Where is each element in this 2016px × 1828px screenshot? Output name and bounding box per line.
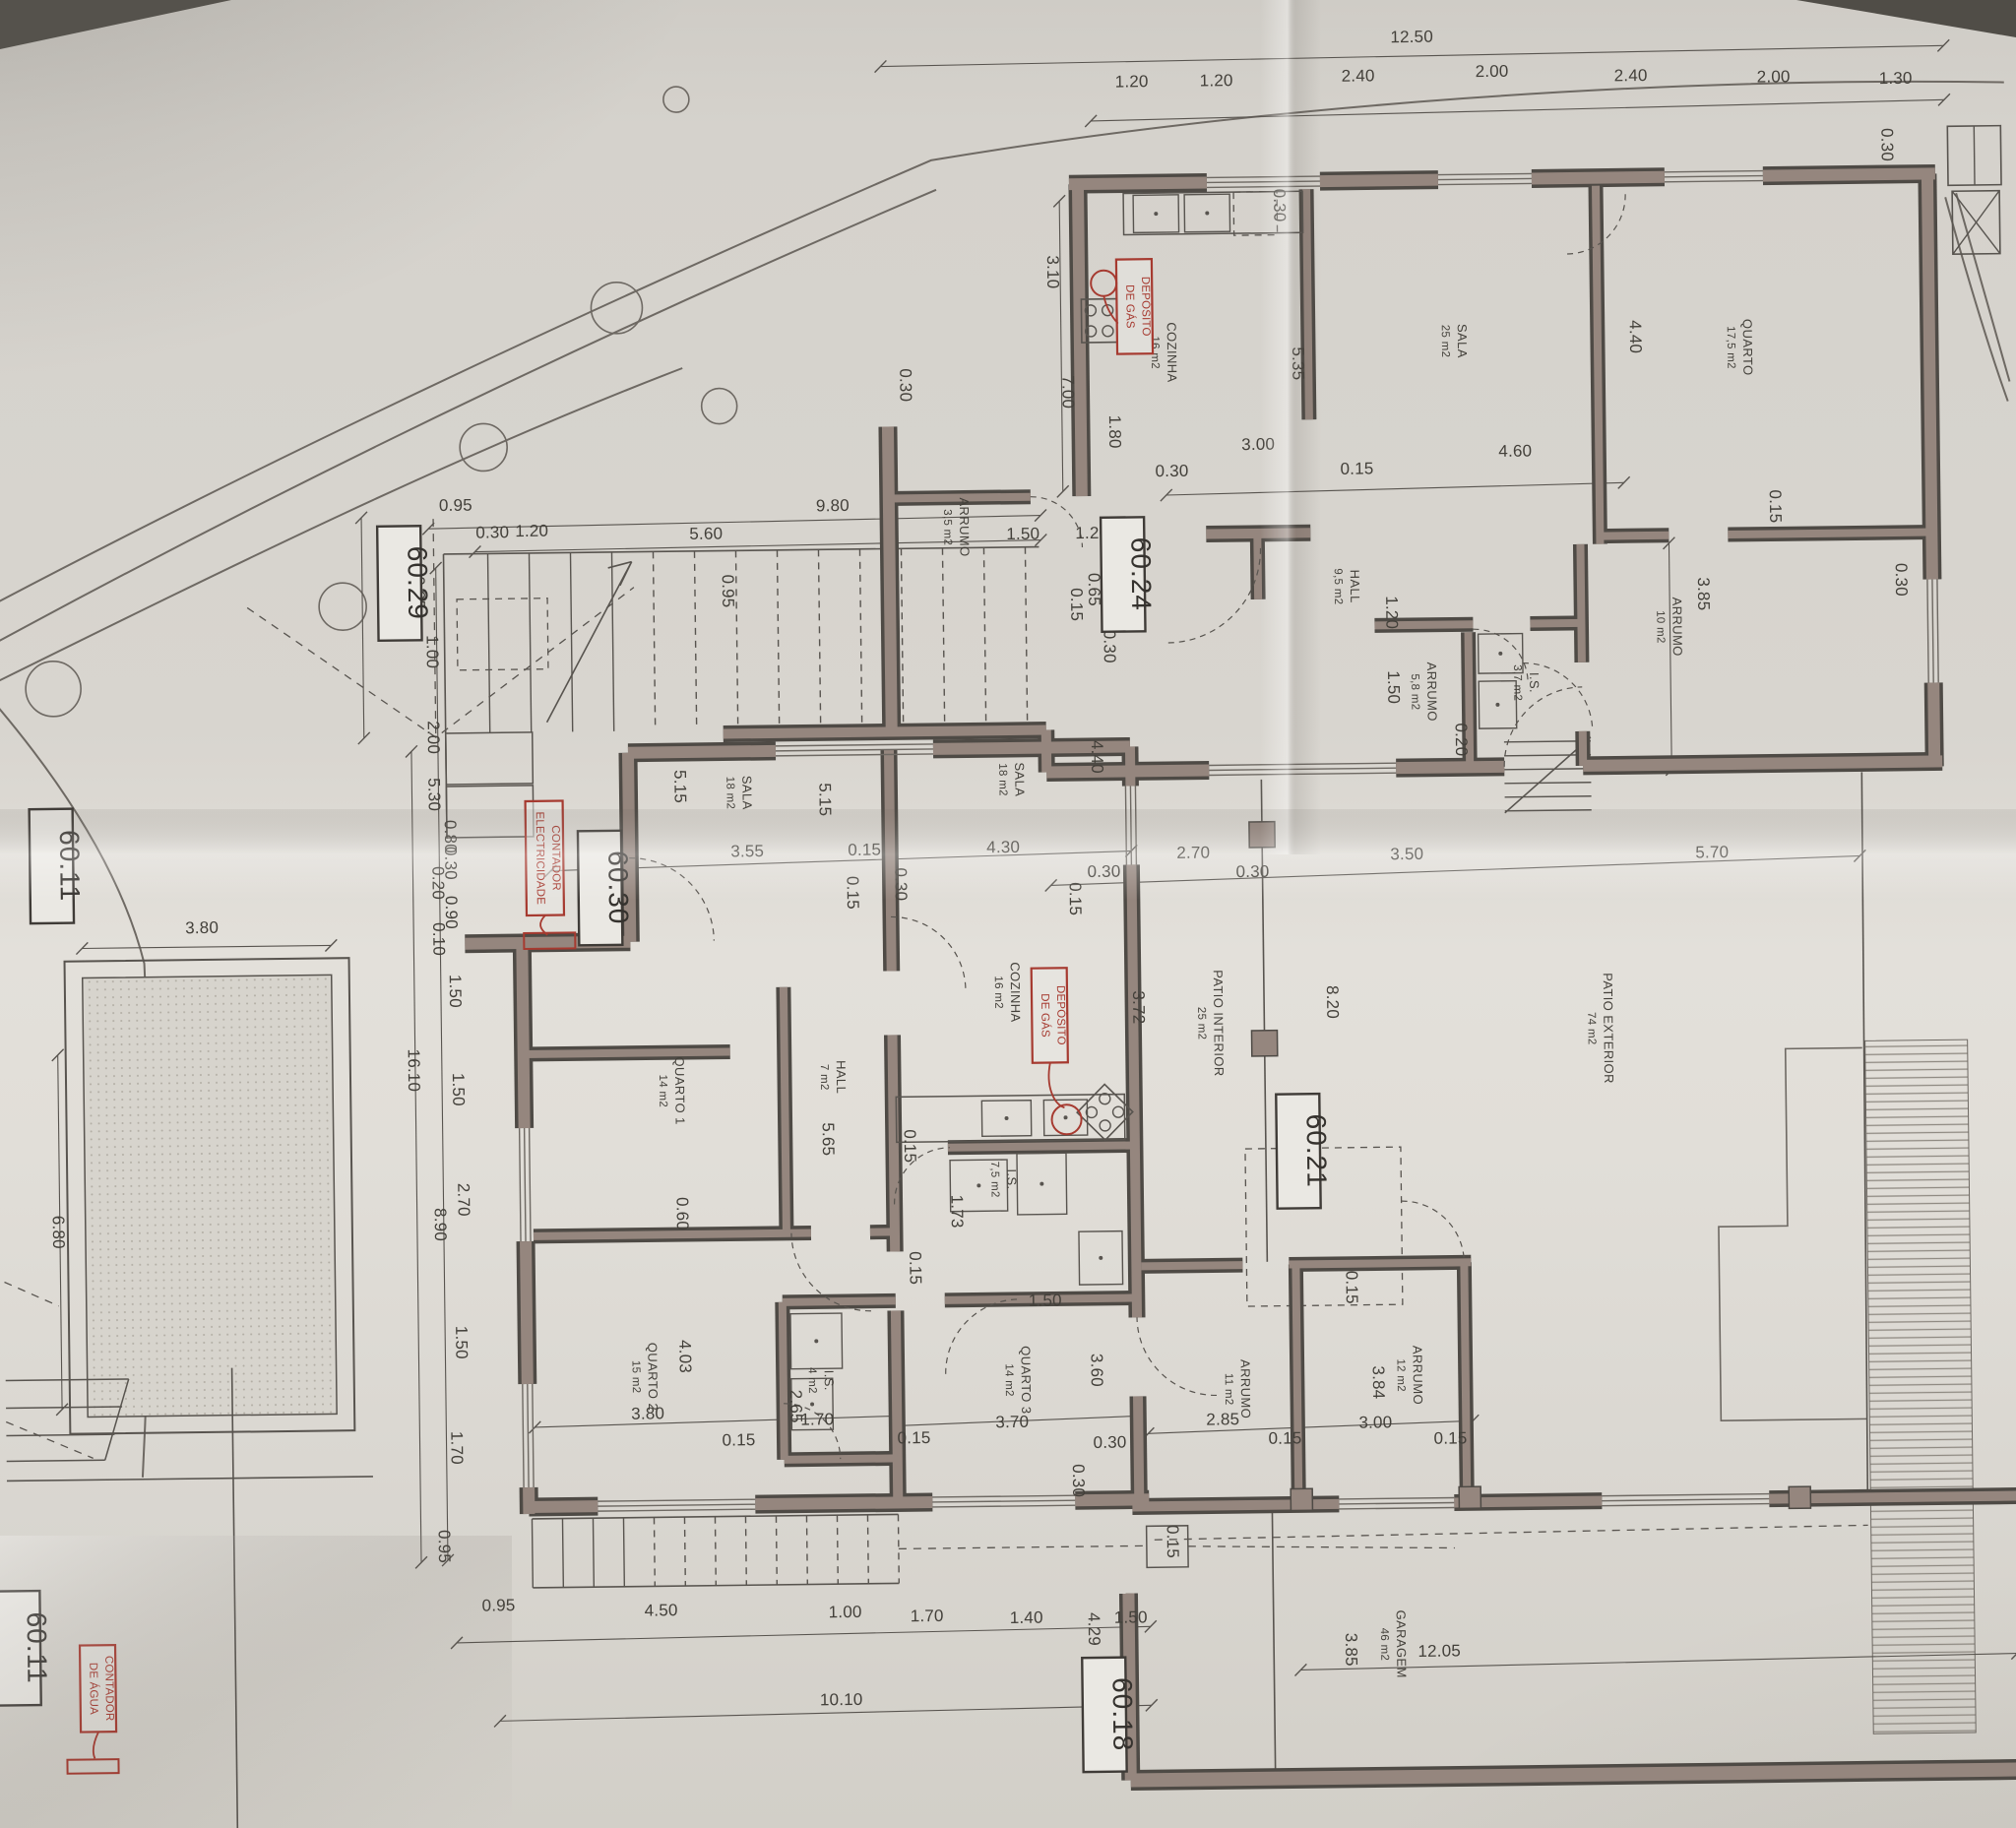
dimension-label: 1.30 xyxy=(1879,69,1913,88)
room-label: SALA xyxy=(1455,324,1470,358)
room-area-label: 25 m2 xyxy=(1195,1007,1207,1040)
dashed-line xyxy=(433,519,436,735)
dimension-label: 2.70 xyxy=(454,1183,472,1217)
dimension-label: 5.30 xyxy=(424,778,443,811)
stair-tread xyxy=(859,549,861,728)
wall xyxy=(896,1310,898,1502)
wall xyxy=(1320,180,1438,181)
dimension-label: 0.30 xyxy=(1877,128,1896,161)
wall xyxy=(529,1506,598,1507)
wall xyxy=(1141,1265,1242,1266)
fixture-dot xyxy=(1039,1182,1043,1186)
red-annotation-leader xyxy=(1048,1062,1064,1107)
stair-tread xyxy=(1504,769,1591,770)
dimension-label: 3.00 xyxy=(1358,1413,1392,1431)
door-swing-arc xyxy=(1402,1200,1465,1263)
dimension-label: 1.50 xyxy=(452,1326,471,1359)
dimension-line xyxy=(535,1416,897,1426)
window xyxy=(523,1384,524,1487)
dimension-label: 0.15 xyxy=(906,1251,924,1285)
dimension-label: 4.40 xyxy=(1626,320,1645,353)
room-area-label: 3,5 m2 xyxy=(941,509,953,545)
window xyxy=(776,744,933,746)
stair-tread xyxy=(1505,796,1592,797)
dimension-label: 0.95 xyxy=(719,574,737,607)
dimension-label: 7.00 xyxy=(1058,375,1077,409)
stair-tread xyxy=(776,1516,777,1585)
wall xyxy=(724,730,1046,734)
red-annotation-label: DE GÁS xyxy=(1123,284,1137,329)
dimension-label: 1.70 xyxy=(800,1410,834,1428)
dimension-label: 16.10 xyxy=(405,1048,424,1092)
dimension-label: 1.50 xyxy=(446,975,465,1008)
dimension-label: 1.50 xyxy=(1029,1291,1062,1309)
door-swing-arc xyxy=(891,916,966,991)
window xyxy=(1339,1498,1454,1499)
dimension-label: 0.30 xyxy=(475,523,509,541)
window xyxy=(528,1384,529,1487)
dimension-label: 0.30 xyxy=(896,368,914,402)
red-annotation-target xyxy=(1091,271,1116,296)
pool-inner xyxy=(83,975,337,1417)
dimension-label: 6.80 xyxy=(49,1216,68,1249)
landscape-circle xyxy=(460,423,508,472)
stair-tread xyxy=(1025,547,1027,726)
wall xyxy=(1396,767,1504,768)
fixture-dot xyxy=(810,1402,814,1406)
dashed-line xyxy=(1188,1544,1455,1551)
dimension-label: 1.50 xyxy=(449,1073,468,1106)
room-label: QUARTO 2 xyxy=(645,1343,661,1411)
plan-line xyxy=(7,1477,373,1481)
room-label: QUARTO 3 xyxy=(1018,1346,1034,1414)
dimension-label: 0.15 xyxy=(1268,1428,1301,1447)
fixture-dot xyxy=(1498,652,1502,656)
wall xyxy=(784,987,787,1233)
wall xyxy=(1583,761,1942,765)
dimension-label: 1.73 xyxy=(947,1195,966,1229)
room-area-label: 12 m2 xyxy=(1395,1358,1407,1392)
room-area-label: 15 m2 xyxy=(630,1360,642,1394)
stair-tread xyxy=(611,552,613,731)
site-boundary-curve xyxy=(1945,197,2008,403)
dimension-label: 1.50 xyxy=(1006,525,1039,543)
column xyxy=(1291,1488,1312,1510)
dashed-line xyxy=(4,1282,58,1307)
fixture-dot xyxy=(1005,1116,1009,1120)
floor-plan: 12.501.201.202.402.002.402.001.300.303.1… xyxy=(0,0,2016,1828)
window xyxy=(1927,580,1928,683)
dimension-line xyxy=(1059,201,1063,491)
dimension-label: 0.15 xyxy=(901,1129,919,1163)
paved-walkway-hatch xyxy=(1865,1040,1977,1733)
plan-line xyxy=(1272,1513,1275,1774)
site-boundary-curve xyxy=(0,80,2010,602)
window xyxy=(1438,183,1532,184)
wall xyxy=(1933,682,1934,766)
room-label: ARRUMO xyxy=(1410,1346,1425,1405)
room-area-label: 11 m2 xyxy=(1223,1373,1234,1406)
dimension-label: 2.00 xyxy=(1476,62,1509,81)
plan-line xyxy=(545,562,634,723)
dimension-label: 5.15 xyxy=(670,770,689,803)
window xyxy=(525,1128,526,1241)
room-label: HALL xyxy=(1348,570,1362,603)
room-area-label: 17,5 m2 xyxy=(1725,326,1737,369)
dimension-label: 1.20 xyxy=(1200,71,1233,90)
dashed-line xyxy=(6,1420,93,1459)
fixture-dot xyxy=(1495,703,1499,707)
dimension-label: 0.30 xyxy=(1094,1433,1127,1452)
plan-line xyxy=(620,562,632,586)
wall xyxy=(526,1241,528,1384)
room-label: I.S. xyxy=(1527,672,1542,693)
red-annotation-target xyxy=(1051,1104,1081,1134)
window xyxy=(598,1499,755,1501)
window xyxy=(1937,579,1938,682)
wall xyxy=(1763,173,1935,175)
dimension-label: 2.85 xyxy=(1206,1410,1239,1428)
dimension-label: 0.10 xyxy=(429,922,448,956)
dimension-label: 3.72 xyxy=(1129,990,1148,1024)
dimension-label: 1.70 xyxy=(911,1607,944,1625)
room-label: ARRUMO xyxy=(1424,662,1440,722)
wall xyxy=(755,1502,932,1504)
dimension-label: 1.20 xyxy=(515,522,548,540)
stair-tread xyxy=(684,1517,685,1586)
fixture-dot xyxy=(1154,212,1158,216)
room-label: QUARTO 1 xyxy=(672,1056,688,1124)
dashed-rect xyxy=(457,599,548,670)
dimension-label: 12.50 xyxy=(1390,28,1433,47)
stair-tread xyxy=(529,553,531,732)
room-area-label: 18 m2 xyxy=(724,777,735,810)
stair-tread xyxy=(942,548,944,727)
window xyxy=(932,1495,1075,1497)
dimension-line xyxy=(880,45,1943,66)
room-label: ARRUMO xyxy=(1238,1359,1254,1418)
room-area-label: 5,8 m2 xyxy=(1409,673,1420,710)
dimension-label: 10.10 xyxy=(820,1690,863,1710)
room-label: ARRUMO xyxy=(1669,597,1685,656)
window xyxy=(1602,1504,1769,1506)
wall xyxy=(628,751,776,753)
room-label: PATIO INTERIOR xyxy=(1211,970,1227,1077)
dimension-label: 3.80 xyxy=(185,918,219,937)
room-area-label: 74 m2 xyxy=(1585,1012,1597,1045)
dimension-label: 1.20 xyxy=(1382,596,1401,629)
dimension-label: 1.50 xyxy=(1114,1607,1148,1626)
room-area-label: 7,5 m2 xyxy=(988,1162,1000,1198)
landscape-circle xyxy=(701,388,736,423)
window xyxy=(533,1384,534,1487)
column xyxy=(1459,1486,1480,1508)
fixture-dot xyxy=(1099,1256,1102,1260)
wall xyxy=(1580,544,1581,662)
window xyxy=(932,1500,1075,1502)
dimension-label: 0.30 xyxy=(1892,563,1911,597)
photographed-floor-plan-sheet: 12.501.201.202.402.002.402.001.300.303.1… xyxy=(0,0,2016,1828)
dimension-label: 1.70 xyxy=(447,1431,466,1465)
room-area-label: 7 m2 xyxy=(818,1064,830,1091)
window xyxy=(1339,1503,1454,1504)
dimension-label: 9.80 xyxy=(816,496,850,515)
room-label: GARAGEM xyxy=(1394,1609,1410,1677)
dimension-label: 4.60 xyxy=(1498,441,1532,460)
dimension-label: 2.40 xyxy=(1614,66,1648,85)
wall xyxy=(1131,864,1137,1317)
window xyxy=(598,1504,755,1506)
room-area-label: 10 m2 xyxy=(1654,610,1666,644)
window xyxy=(1665,176,1763,177)
window xyxy=(776,749,933,751)
room-label: COZINHA xyxy=(1008,962,1024,1022)
room-area-label: 14 m2 xyxy=(657,1074,668,1107)
elevation-marker-label: 60.24 xyxy=(1125,537,1157,611)
pool-step xyxy=(7,1460,105,1461)
dashed-line xyxy=(899,1545,1147,1548)
room-area-label: 4 m2 xyxy=(806,1367,818,1394)
dimension-label: 0.15 xyxy=(1766,489,1785,523)
utility-cabinet-icon xyxy=(1974,126,1975,185)
wall xyxy=(1927,174,1932,580)
red-annotation-label: DEPÓSITO xyxy=(1054,985,1068,1045)
pool-step xyxy=(6,1434,114,1435)
wall xyxy=(783,1300,896,1301)
dimension-label: 3.10 xyxy=(1043,255,1062,288)
room-label: SALA xyxy=(1012,762,1027,796)
window xyxy=(598,1509,755,1511)
wall xyxy=(1257,534,1258,599)
stair-tread xyxy=(901,548,903,727)
window xyxy=(1602,1494,1769,1496)
wall xyxy=(1295,1264,1298,1504)
elevation-marker-label: 60.29 xyxy=(402,546,433,620)
dimension-line xyxy=(457,1626,1151,1643)
landscape-circle xyxy=(319,583,367,631)
site-boundary-curve xyxy=(1956,193,2009,383)
dimension-line xyxy=(1148,1420,1473,1433)
fixture-dot xyxy=(814,1339,818,1343)
room-area-label: 16 m2 xyxy=(992,976,1004,1009)
door-swing-arc xyxy=(1137,1316,1217,1396)
photo-background-corner-top-right xyxy=(1796,0,2016,37)
stair-tread xyxy=(654,1517,655,1586)
room-label: SALA xyxy=(739,776,754,810)
dimension-label: 3.70 xyxy=(995,1413,1029,1431)
dimension-label: 1.00 xyxy=(423,635,442,668)
dimension-label: 3.85 xyxy=(1342,1633,1360,1667)
dimension-label: 2.00 xyxy=(424,721,443,754)
room-label: I.S. xyxy=(822,1370,837,1391)
dimension-label: 0.15 xyxy=(1433,1428,1467,1447)
wall xyxy=(888,426,892,731)
stair-tread xyxy=(623,1518,624,1587)
paper-fold-vertical xyxy=(1260,0,1321,854)
window xyxy=(1665,181,1763,182)
elevation-marker-label: 60.18 xyxy=(1106,1677,1138,1751)
stair-tread xyxy=(745,1516,746,1585)
stair-tread xyxy=(818,549,820,728)
stair-tread xyxy=(487,553,489,732)
window xyxy=(1438,173,1532,174)
stair-tread xyxy=(532,1519,533,1588)
dimension-line xyxy=(361,518,364,738)
dimension-label: 3.60 xyxy=(1087,1354,1105,1387)
window xyxy=(932,1505,1075,1507)
window xyxy=(1932,580,1933,683)
dimension-label: 3.85 xyxy=(1694,577,1713,610)
window xyxy=(1602,1499,1769,1501)
dimension-label: 0.30 xyxy=(1069,1464,1088,1497)
dimension-label: 2.40 xyxy=(1342,66,1375,85)
paper-fold-horizontal xyxy=(0,809,2016,900)
dimension-label: 3.84 xyxy=(1369,1365,1388,1399)
room-label: I.S. xyxy=(1004,1168,1019,1189)
dimension-label: 2.00 xyxy=(1757,67,1791,86)
dashed-line xyxy=(1155,1525,1868,1540)
dimension-label: 0.15 xyxy=(1342,1271,1360,1304)
paper-crease-bottom-left xyxy=(0,1536,512,1828)
counter-or-landing xyxy=(446,732,534,785)
dimension-label: 0.30 xyxy=(1100,630,1118,663)
dimension-label: 0.15 xyxy=(897,1428,930,1447)
dimension-line xyxy=(1166,482,1624,495)
dimension-label: 1.80 xyxy=(1105,415,1124,449)
window xyxy=(1339,1508,1454,1509)
window xyxy=(1438,178,1532,179)
room-label: QUARTO xyxy=(1740,319,1756,376)
room-area-label: 25 m2 xyxy=(1439,325,1451,358)
dimension-label: 0.30 xyxy=(1155,462,1188,480)
dimension-label: 1.40 xyxy=(1010,1608,1043,1627)
stair-tread xyxy=(983,547,985,726)
room-label: COZINHA xyxy=(1165,322,1180,382)
stair-tread xyxy=(806,1516,807,1585)
wall xyxy=(1289,1262,1471,1264)
room-label: ARRUMO xyxy=(957,497,973,556)
window xyxy=(520,1128,521,1241)
stair-tread xyxy=(867,1515,868,1584)
site-boundary-curve xyxy=(0,190,941,643)
dimension-label: 8.90 xyxy=(431,1208,450,1241)
door-swing-arc xyxy=(1166,548,1261,643)
dimension-label: 5.60 xyxy=(689,525,723,543)
wall xyxy=(892,1035,895,1251)
window xyxy=(1665,171,1763,172)
wall xyxy=(524,1051,730,1054)
exterior-steps-outline xyxy=(1717,1047,1867,1420)
dimension-line xyxy=(1091,99,1944,121)
wall xyxy=(1600,536,1669,536)
stair-tread xyxy=(694,551,696,730)
stair-tread xyxy=(570,552,572,731)
dimension-label: 1.50 xyxy=(1384,670,1403,704)
column xyxy=(1251,1031,1277,1056)
dimension-label: 1.20 xyxy=(1115,72,1149,91)
dimension-label: 4.40 xyxy=(1088,740,1106,774)
dimension-line xyxy=(82,945,331,948)
dimension-label: 0.60 xyxy=(672,1197,691,1230)
landscape-circle xyxy=(26,661,82,717)
room-label: HALL xyxy=(834,1060,849,1094)
dimension-label: 8.20 xyxy=(1323,985,1342,1019)
stair-tread xyxy=(653,551,655,730)
wall xyxy=(1138,1396,1139,1506)
red-annotation-label: DEPÓSITO xyxy=(1139,277,1153,337)
wall xyxy=(522,943,524,1128)
dimension-label: 4.29 xyxy=(1085,1612,1103,1646)
fixture-dot xyxy=(1205,211,1209,215)
wall xyxy=(534,1232,811,1235)
room-label: PATIO EXTERIOR xyxy=(1601,973,1616,1084)
dimension-label: 1.00 xyxy=(829,1603,862,1621)
column xyxy=(1789,1486,1810,1508)
dimension-label: 4.50 xyxy=(645,1601,678,1619)
dimension-label: 12.05 xyxy=(1417,1641,1461,1661)
wall xyxy=(1530,623,1581,624)
stair-tread xyxy=(715,1517,716,1586)
landscape-circle xyxy=(663,87,689,112)
wall xyxy=(1532,177,1665,179)
wall xyxy=(1464,1262,1467,1502)
stair-tread xyxy=(562,1519,563,1588)
stair-tread xyxy=(593,1518,594,1587)
red-annotation-label: DE GÁS xyxy=(1039,993,1052,1038)
wall xyxy=(1069,182,1207,184)
photo-background-corner-top-left xyxy=(0,0,231,49)
elevation-marker-label: 60.21 xyxy=(1301,1113,1333,1187)
wall xyxy=(783,1302,785,1460)
stair-tread xyxy=(1504,783,1591,784)
wall xyxy=(948,1145,1135,1147)
dimension-label: 0.15 xyxy=(1164,1525,1182,1558)
fixture-dot xyxy=(976,1183,980,1187)
wall xyxy=(1596,186,1600,544)
dimension-label: 0.20 xyxy=(1452,723,1471,756)
dimension-label: 5.65 xyxy=(819,1122,838,1156)
room-area-label: 9,5 m2 xyxy=(1332,568,1344,604)
dimension-label: 0.15 xyxy=(1340,459,1373,477)
window xyxy=(776,754,933,756)
room-area-label: 3,7 m2 xyxy=(1511,664,1523,701)
dimension-label: 0.15 xyxy=(1067,588,1086,621)
fixture-dot xyxy=(1064,1115,1068,1119)
room-area-label: 14 m2 xyxy=(1003,1363,1015,1397)
stair-tread xyxy=(837,1515,838,1584)
dimension-label: 0.15 xyxy=(722,1430,755,1449)
wall xyxy=(1728,533,1931,536)
dimension-label: 4.03 xyxy=(675,1340,694,1373)
room-area-label: 46 m2 xyxy=(1378,1628,1390,1662)
room-area-label: 18 m2 xyxy=(996,763,1008,796)
window xyxy=(530,1128,531,1241)
stair-tread xyxy=(777,550,779,729)
dimension-label: 0.95 xyxy=(439,496,472,515)
